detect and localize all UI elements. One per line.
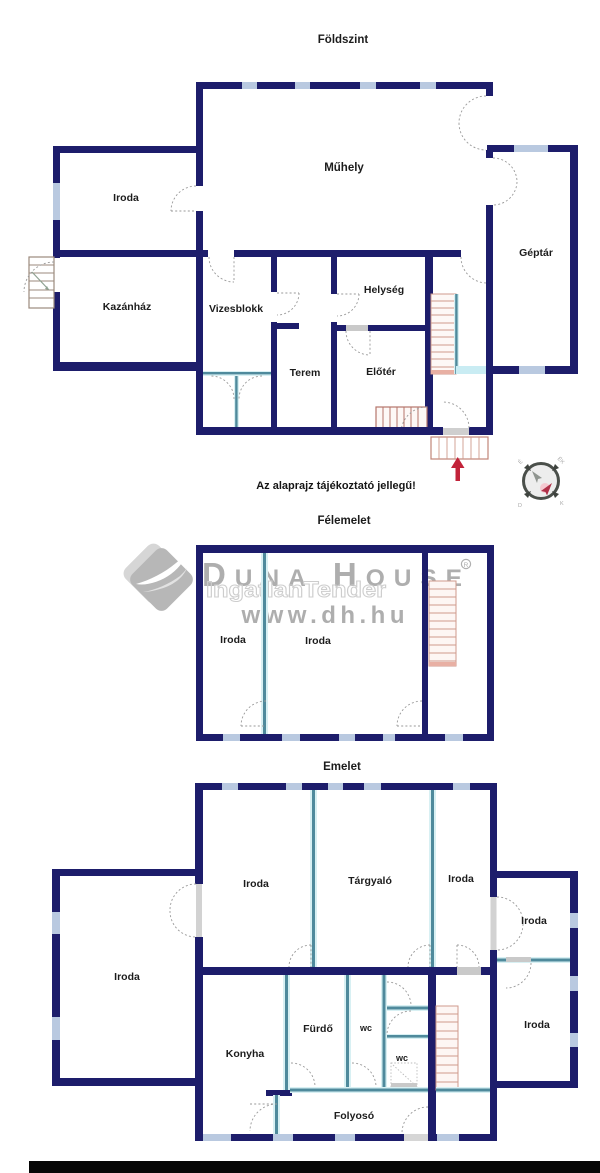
svg-text:Iroda: Iroda [243,878,269,890]
svg-text:wc: wc [395,1053,408,1063]
svg-text:Fürdő: Fürdő [303,1023,333,1035]
svg-text:D: D [518,503,522,509]
svg-text:Iroda: Iroda [113,192,139,204]
svg-text:Iroda: Iroda [114,971,140,983]
svg-text:Az alaprajz tájékoztató jelleg: Az alaprajz tájékoztató jellegű! [256,480,416,492]
svg-text:Tárgyaló: Tárgyaló [348,875,392,887]
svg-text:Iroda: Iroda [220,634,246,646]
svg-text:Helység: Helység [364,284,404,296]
svg-text:IngatlanTender: IngatlanTender [206,577,386,602]
svg-text:Iroda: Iroda [521,915,547,927]
svg-text:Konyha: Konyha [226,1048,265,1060]
svg-text:Műhely: Műhely [324,162,364,174]
svg-text:Vizesblokk: Vizesblokk [209,303,263,315]
svg-text:Előtér: Előtér [366,366,396,378]
svg-text:Földszint: Földszint [318,34,369,46]
svg-text:R: R [464,562,469,569]
svg-text:Terem: Terem [290,367,321,379]
svg-text:Folyosó: Folyosó [334,1110,374,1122]
svg-text:Iroda: Iroda [305,635,331,647]
svg-text:Kazánház: Kazánház [103,301,151,313]
svg-text:Iroda: Iroda [524,1019,550,1031]
svg-text:wc: wc [359,1023,372,1033]
svg-text:Géptár: Géptár [519,247,553,259]
svg-text:Félemelet: Félemelet [317,515,370,527]
svg-text:Iroda: Iroda [448,873,474,885]
svg-text:K: K [560,501,564,507]
svg-text:Emelet: Emelet [323,761,361,773]
